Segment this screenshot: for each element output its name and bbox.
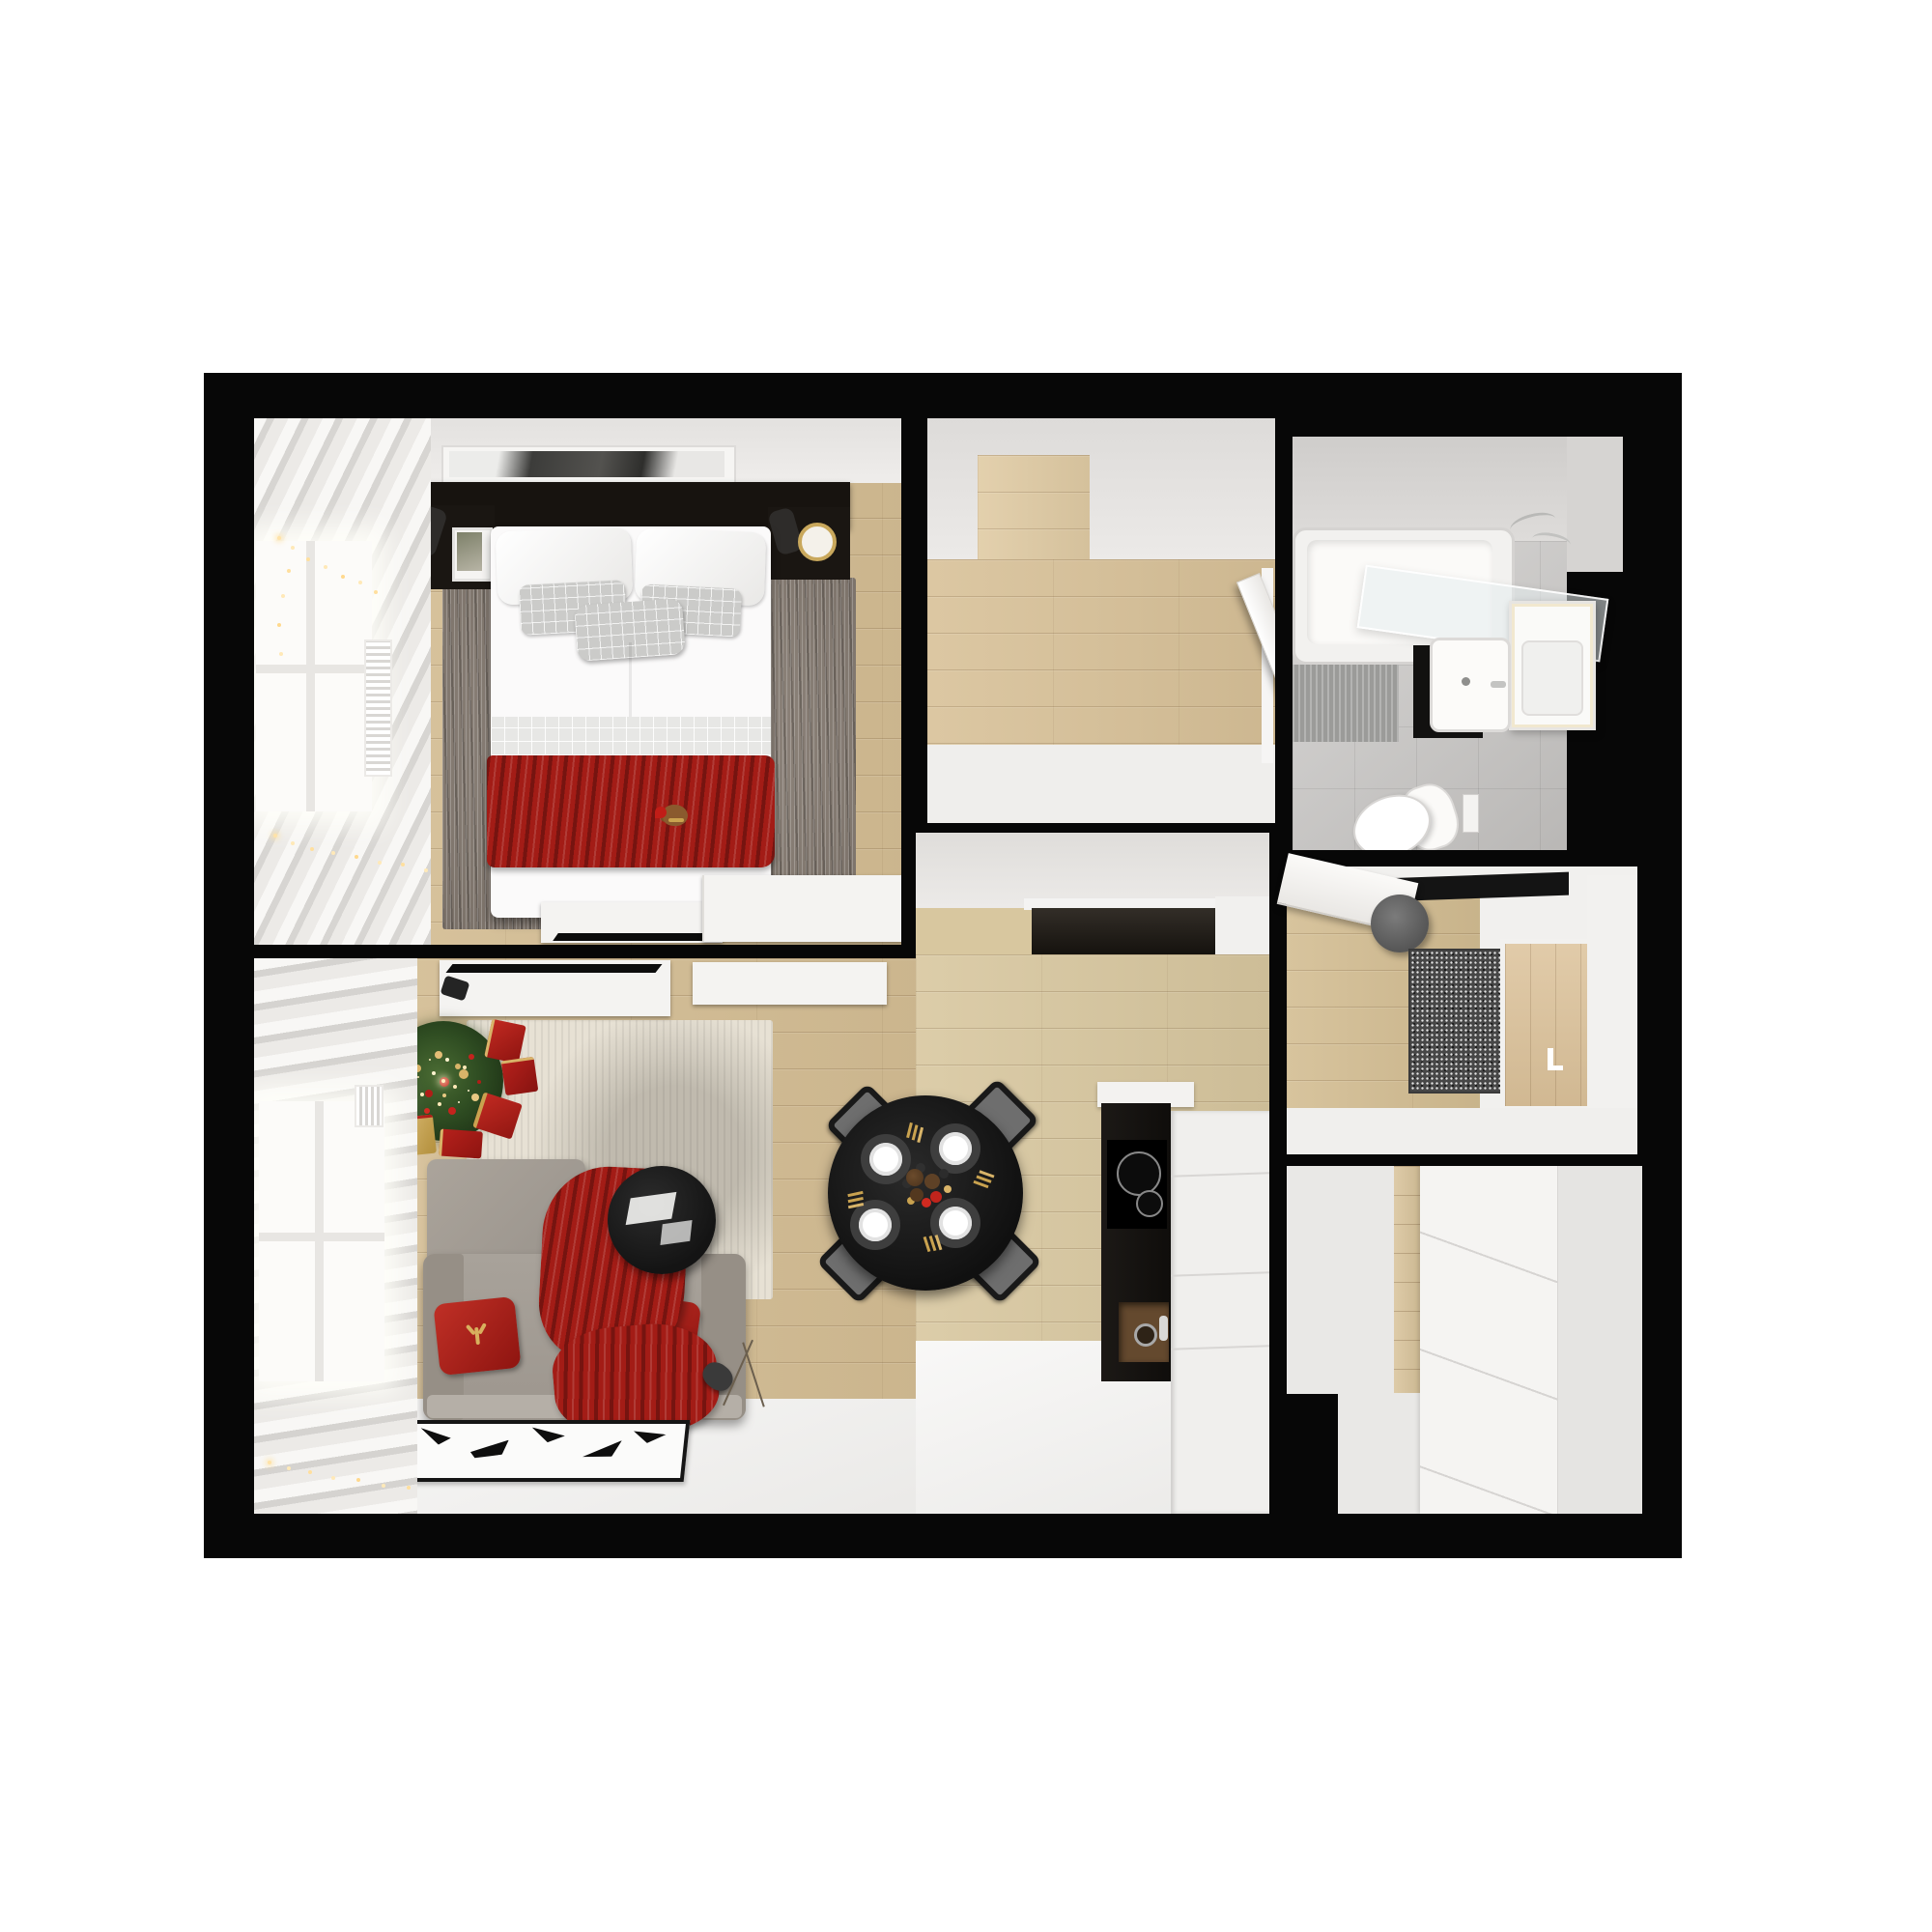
alarm-clock xyxy=(798,523,837,561)
hall-wood-patch xyxy=(978,455,1090,563)
basin-faucet xyxy=(1491,681,1506,688)
tree-lights xyxy=(441,1079,445,1083)
room-living xyxy=(254,958,916,1514)
cabinet-seam-3 xyxy=(1171,1345,1269,1350)
red-runner-blanket xyxy=(487,755,775,867)
closet-wardrobe-front xyxy=(1420,1166,1557,1514)
bedroom-radiator xyxy=(364,639,392,777)
nightstand-photo-frame xyxy=(452,527,493,582)
closet-wood-strip xyxy=(1394,1166,1420,1393)
wood-panel-niche xyxy=(1500,939,1597,1111)
place-setting-sw xyxy=(859,1208,892,1241)
tv-flat-panel xyxy=(445,964,662,973)
vanity-basin xyxy=(1430,638,1511,732)
tv-sideboard-right xyxy=(693,962,887,1005)
floor-plan-canvas xyxy=(0,0,1932,1932)
string-lights-bottom xyxy=(273,834,277,838)
living-window-mullion xyxy=(315,1101,324,1381)
bw-rug-shape-5 xyxy=(631,1429,666,1446)
living-string-lights xyxy=(268,1461,271,1464)
closet-void xyxy=(1287,1394,1338,1514)
bw-rug-shape-2 xyxy=(470,1440,510,1461)
burner-small xyxy=(1136,1190,1163,1217)
bedroom-dresser-right xyxy=(702,875,901,942)
bw-rug-shape-3 xyxy=(528,1428,565,1445)
hall-wood-floor xyxy=(927,559,1275,747)
teddy-santa-hat xyxy=(655,807,667,818)
gift-box-5 xyxy=(439,1128,483,1158)
bw-rug-shape-1 xyxy=(416,1428,451,1447)
induction-cooktop xyxy=(1107,1140,1167,1229)
bed xyxy=(491,526,771,918)
gray-pouf xyxy=(1371,895,1429,952)
burner-large xyxy=(1117,1151,1161,1196)
office-bottom-band xyxy=(1287,1108,1637,1154)
festive-centerpiece xyxy=(906,1169,923,1186)
kitchen-sink xyxy=(1119,1302,1169,1362)
bedroom-tv-flat xyxy=(553,933,720,941)
mirror-cabinet xyxy=(1509,601,1596,730)
bath-mat xyxy=(1293,665,1399,742)
bedroom-wall-art xyxy=(441,445,736,487)
closet-right-panel xyxy=(1557,1166,1642,1514)
coffee-table xyxy=(608,1166,716,1274)
photo-image xyxy=(457,532,482,571)
kitchen-niche-dark xyxy=(1032,908,1215,954)
teddy-bear xyxy=(663,805,688,826)
window-transom xyxy=(256,665,372,673)
kitchen-white-column xyxy=(1215,896,1269,954)
cabinet-seam-1 xyxy=(1171,1172,1269,1178)
gift-box-2 xyxy=(501,1057,539,1095)
flush-plate xyxy=(1463,794,1479,833)
living-window-transom xyxy=(259,1233,384,1241)
deer-motif-left xyxy=(474,1327,480,1345)
niche-handle-horizontal xyxy=(1548,1065,1563,1070)
place-setting-se xyxy=(939,1207,972,1239)
teddy-scarf xyxy=(668,818,684,822)
living-window xyxy=(259,1101,384,1381)
mirror-basin-reflection xyxy=(1521,640,1583,716)
kitchen-tall-cabinets xyxy=(1171,1111,1269,1514)
bedroom-window xyxy=(256,541,372,811)
duvet-fold-line xyxy=(629,642,632,720)
room-hallway xyxy=(927,418,1275,823)
red-pillow-left xyxy=(433,1296,521,1376)
bw-pattern-rug xyxy=(396,1420,691,1482)
wall-art-canvas xyxy=(449,451,724,477)
office-right-column xyxy=(1587,875,1637,1108)
table-reflection-2 xyxy=(660,1220,692,1245)
bathroom-right-wall xyxy=(1567,437,1623,572)
sink-faucet xyxy=(1159,1316,1168,1341)
place-setting-ne xyxy=(939,1132,972,1165)
bw-rug-shape-4 xyxy=(582,1440,624,1463)
hall-bottom-band xyxy=(927,745,1275,823)
room-closet xyxy=(1287,1166,1642,1514)
room-bathroom xyxy=(1293,437,1623,850)
room-dressing-office xyxy=(1287,867,1637,1154)
place-setting-nw xyxy=(869,1143,902,1176)
basin-drain xyxy=(1462,677,1470,686)
window-mullion xyxy=(306,541,315,811)
table-reflection-1 xyxy=(626,1192,677,1225)
cabinet-seam-2 xyxy=(1171,1271,1269,1277)
quilt-fold-band xyxy=(491,717,771,755)
room-bedroom xyxy=(254,418,901,945)
sink-drain xyxy=(1134,1323,1157,1347)
speckled-rug xyxy=(1408,949,1503,1094)
living-radiator xyxy=(355,1085,384,1127)
string-lights-top xyxy=(277,536,281,540)
